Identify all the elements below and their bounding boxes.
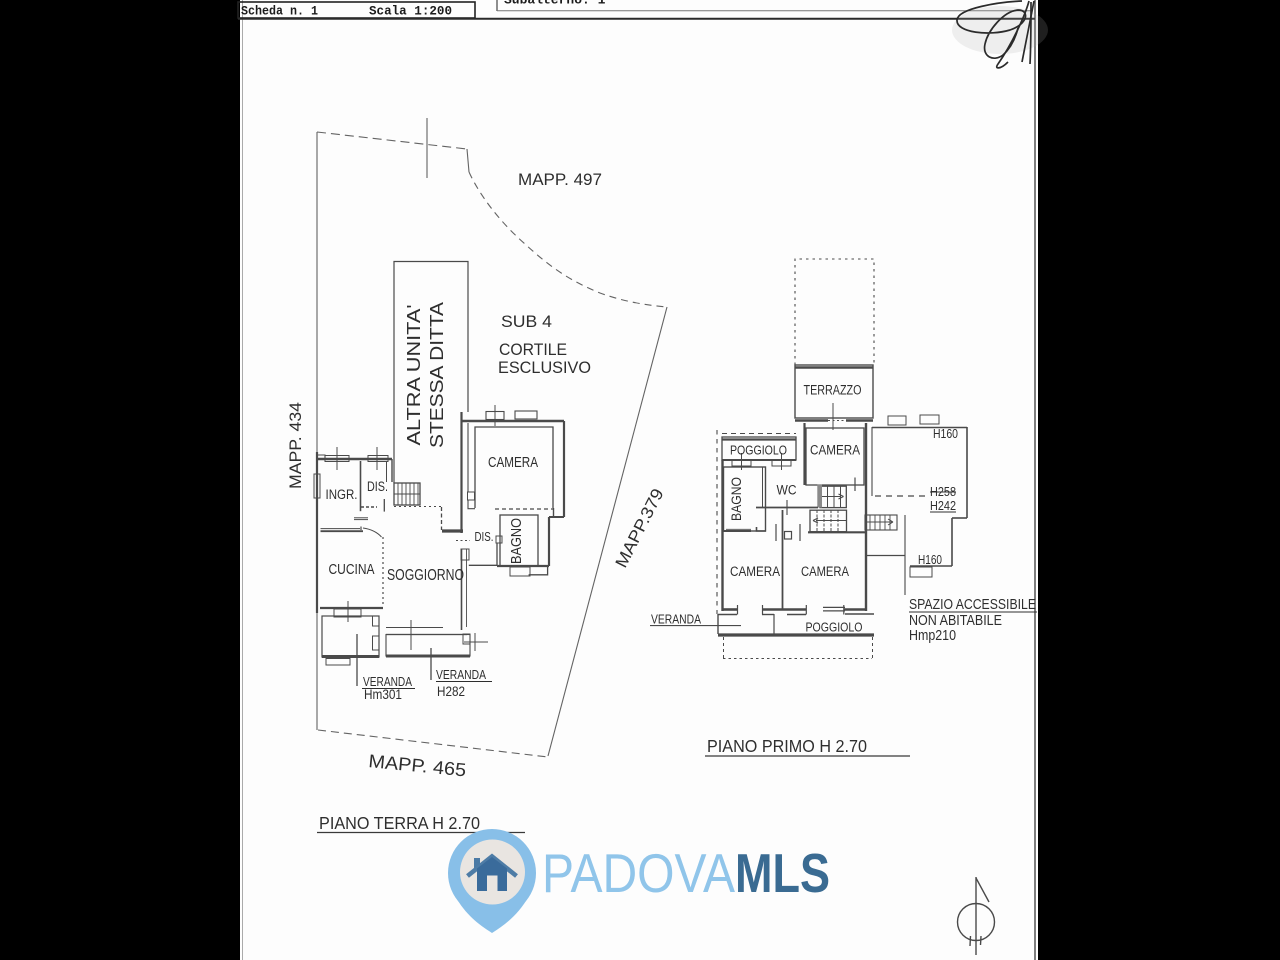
svg-text:STESSA DITTA: STESSA DITTA [426, 301, 447, 448]
svg-text:DIS.: DIS. [475, 529, 494, 544]
svg-text:CUCINA: CUCINA [329, 562, 375, 578]
svg-text:PIANO TERRA H 2.70: PIANO TERRA H 2.70 [319, 813, 480, 833]
svg-text:H282: H282 [437, 684, 465, 699]
svg-text:POGGIOLO: POGGIOLO [730, 444, 787, 458]
svg-text:WC: WC [777, 483, 797, 498]
svg-text:MAPP. 497: MAPP. 497 [518, 170, 602, 189]
svg-text:INGR.: INGR. [326, 487, 358, 502]
svg-text:CAMERA: CAMERA [488, 455, 538, 471]
svg-text:PIANO PRIMO H 2.70: PIANO PRIMO H 2.70 [707, 736, 867, 756]
svg-text:ALTRA UNITA': ALTRA UNITA' [403, 305, 424, 446]
svg-text:NON ABITABILE: NON ABITABILE [909, 613, 1002, 629]
svg-text:PADOVA: PADOVA [542, 842, 735, 904]
svg-text:CAMERA: CAMERA [730, 564, 780, 579]
svg-text:Scala 1:200: Scala 1:200 [369, 5, 452, 19]
svg-text:ESCLUSIVO: ESCLUSIVO [498, 359, 591, 377]
svg-text:POGGIOLO: POGGIOLO [806, 621, 863, 635]
svg-text:TERRAZZO: TERRAZZO [804, 383, 862, 398]
svg-text:Scheda n. 1: Scheda n. 1 [241, 5, 318, 19]
svg-text:VERANDA: VERANDA [651, 613, 702, 627]
svg-text:H242: H242 [930, 499, 956, 513]
svg-text:SOGGIORNO: SOGGIORNO [387, 567, 464, 584]
svg-text:MLS: MLS [735, 842, 830, 904]
svg-text:MAPP. 434: MAPP. 434 [286, 402, 305, 489]
svg-text:MAPP.379: MAPP.379 [612, 486, 668, 571]
svg-text:SUB 4: SUB 4 [501, 313, 552, 331]
svg-text:CAMERA: CAMERA [801, 564, 849, 579]
svg-text:H160: H160 [918, 553, 942, 567]
svg-text:CAMERA: CAMERA [810, 443, 860, 458]
svg-text:Hmp210: Hmp210 [909, 628, 956, 644]
svg-text:CORTILE: CORTILE [499, 341, 567, 359]
svg-text:H160: H160 [933, 427, 958, 441]
svg-text:BAGNO: BAGNO [509, 518, 525, 564]
svg-text:SPAZIO ACCESSIBILE: SPAZIO ACCESSIBILE [909, 597, 1036, 613]
svg-text:MAPP. 465: MAPP. 465 [368, 750, 468, 780]
svg-text:Subalterno: 1: Subalterno: 1 [504, 0, 606, 8]
svg-text:VERANDA: VERANDA [436, 667, 486, 682]
svg-text:BAGNO: BAGNO [728, 477, 744, 521]
svg-text:Hm301: Hm301 [364, 687, 402, 702]
svg-text:DIS.: DIS. [367, 479, 388, 494]
